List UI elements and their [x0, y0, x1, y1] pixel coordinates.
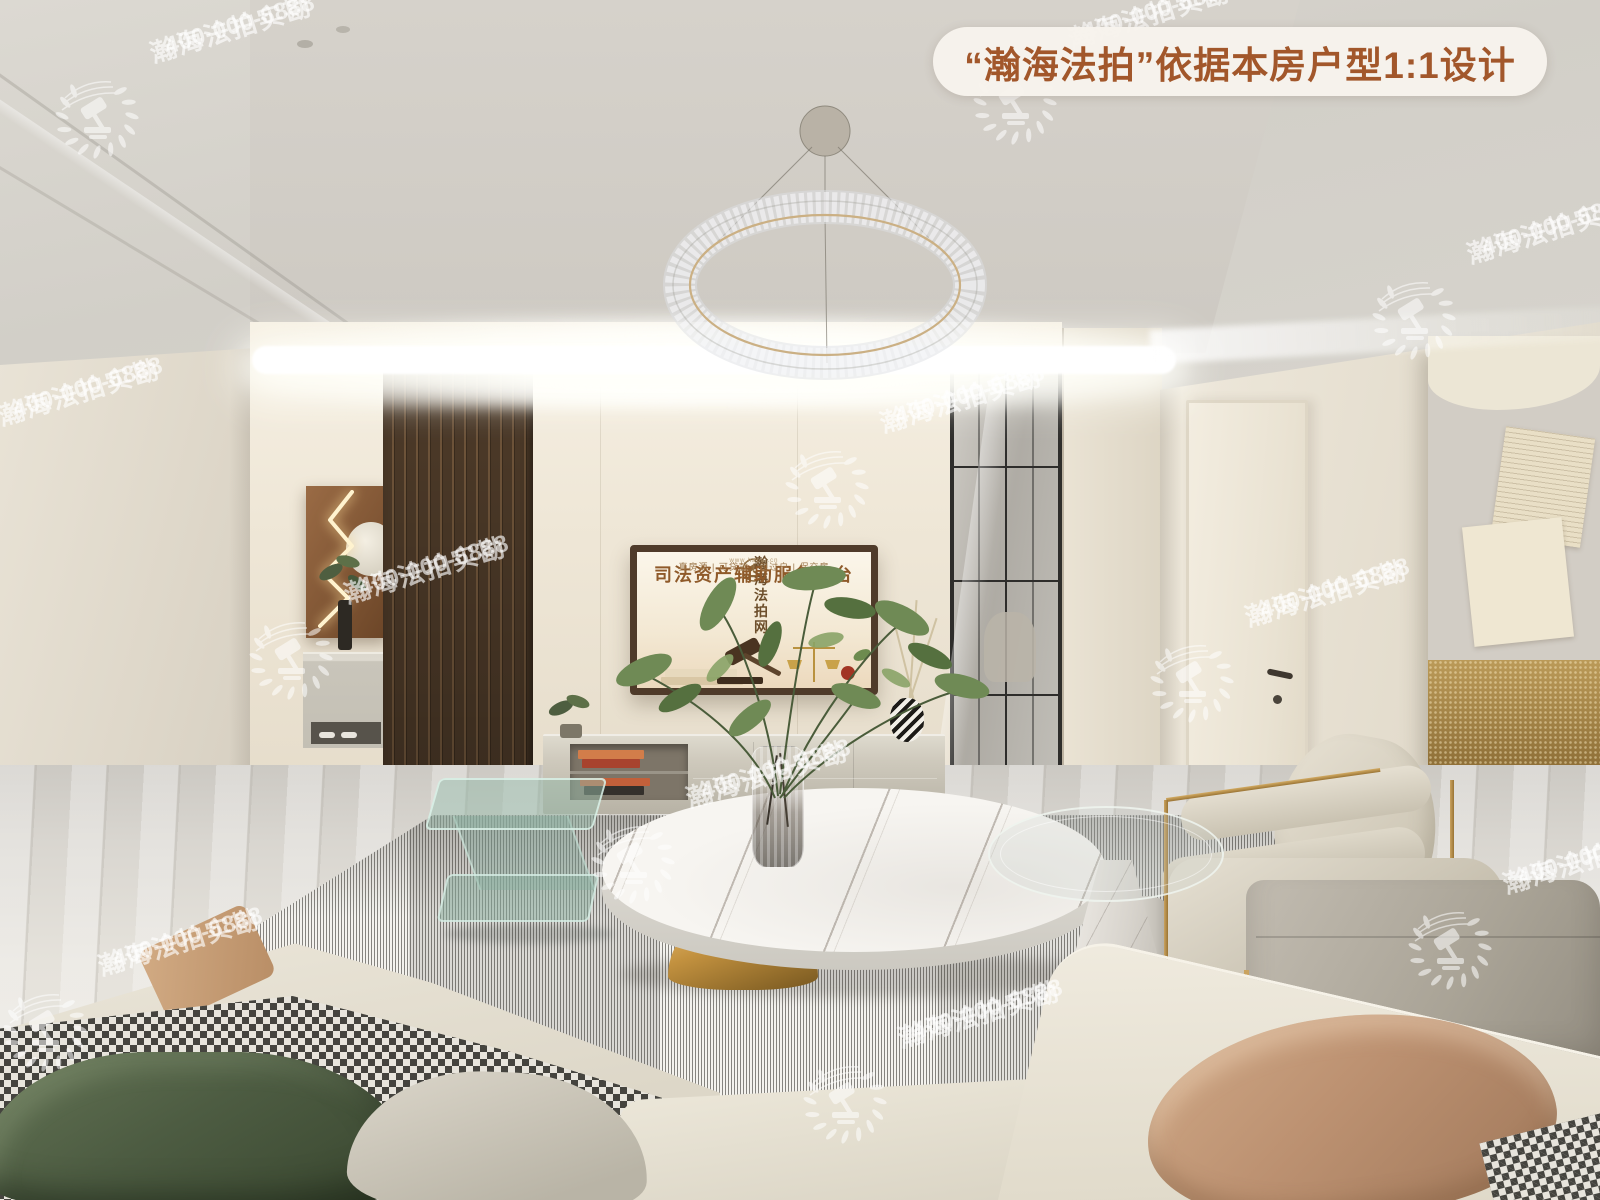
- sideboard-open-niche: [311, 722, 381, 744]
- artwork-paper-collage: [1462, 517, 1574, 647]
- banner-text: “瀚海法拍”依据本房户型1:1设计: [964, 35, 1515, 89]
- glass-highlight: [1000, 816, 1212, 892]
- door-handle: [1267, 668, 1294, 679]
- living-room-photo: 瀚海法拍网® www.hapai.cn 司法资产辅助服务平台 真房源 | 可贷款…: [0, 0, 1600, 1200]
- door-mullion: [1032, 362, 1034, 806]
- hallway-sideboard: [303, 652, 388, 748]
- console-plant-pot: [560, 724, 582, 738]
- glass-table-base: [436, 874, 599, 922]
- potted-green-plant: [600, 548, 1020, 808]
- design-claim-banner: “瀚海法拍”依据本房户型1:1设计: [933, 27, 1547, 96]
- round-glass-side-table: [988, 806, 1224, 902]
- recessed-spotlight: [297, 40, 313, 48]
- slippers: [319, 732, 335, 738]
- ring-glass-chandelier: [640, 95, 1010, 395]
- bench-seam: [1256, 936, 1600, 938]
- table-shadow: [444, 924, 614, 944]
- glass-table-top: [425, 778, 608, 830]
- gold-abstract-artwork: [1428, 342, 1600, 766]
- hallway-plant-vase: [338, 600, 352, 650]
- door-lock: [1273, 695, 1282, 704]
- slippers: [341, 732, 357, 738]
- recessed-spotlight: [336, 26, 350, 33]
